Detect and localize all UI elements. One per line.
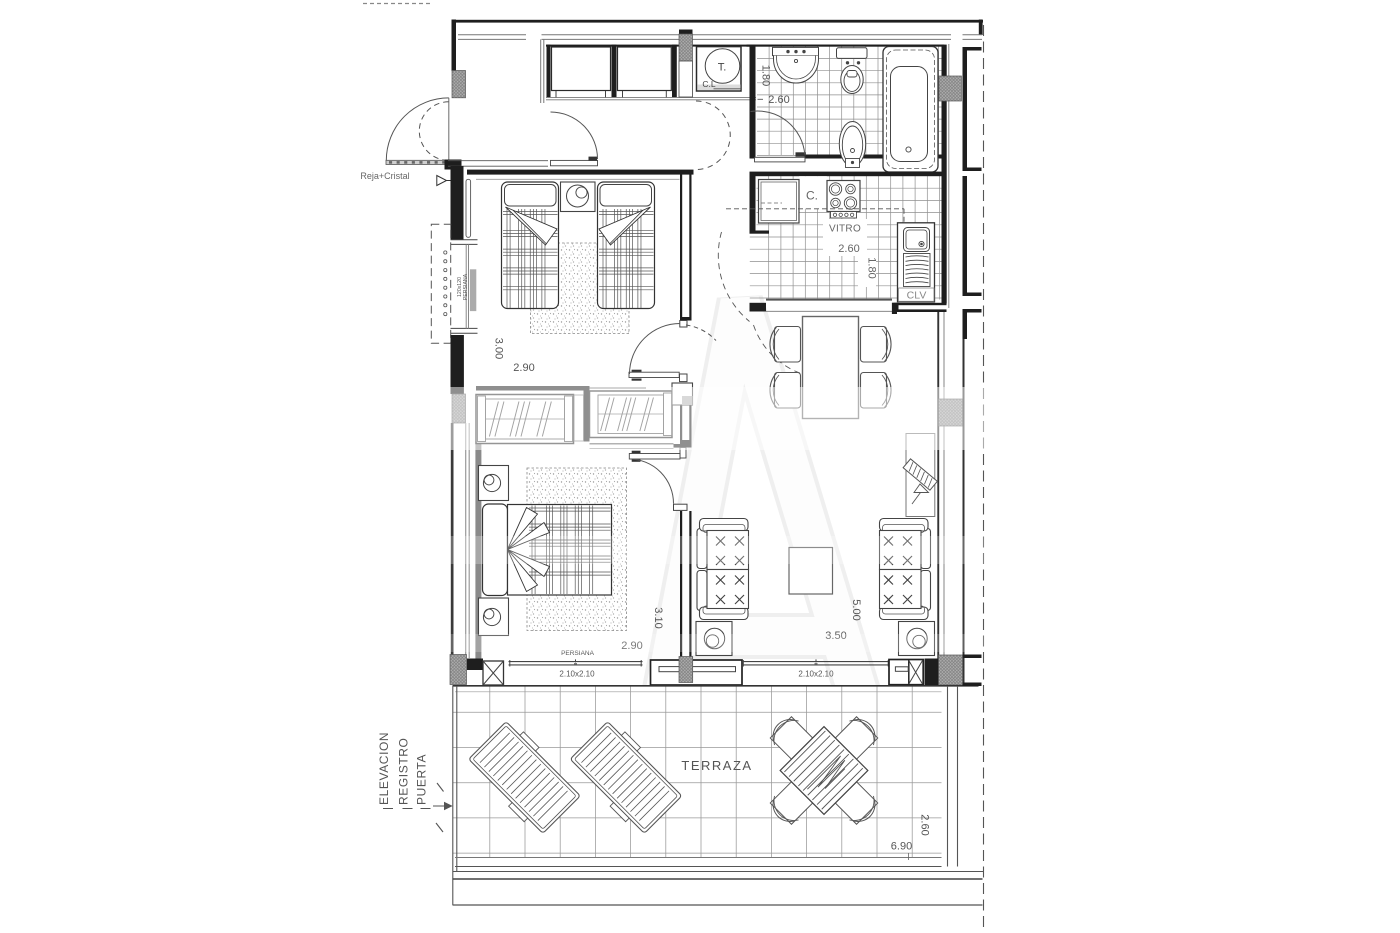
svg-text:CLV: CLV [907,290,927,302]
svg-text:3.10: 3.10 [652,607,664,628]
svg-text:VITRO: VITRO [829,224,861,235]
svg-text:2.90: 2.90 [513,362,534,374]
svg-text:2.10x2.10: 2.10x2.10 [798,670,834,679]
svg-text:2.60: 2.60 [919,814,931,835]
svg-text:1.80: 1.80 [866,257,878,278]
svg-text:2.60: 2.60 [838,243,859,255]
svg-text:TERRAZA: TERRAZA [681,758,752,773]
svg-text:2.10x2.10: 2.10x2.10 [559,670,595,679]
svg-text:3.00: 3.00 [493,338,505,359]
svg-text:6.90: 6.90 [891,841,912,853]
svg-text:ELEVACION: ELEVACION [377,732,391,805]
svg-text:C.L: C.L [702,79,716,89]
svg-text:PERSIANA: PERSIANA [463,273,469,300]
svg-text:Reja+Cristal: Reja+Cristal [360,171,409,181]
svg-text:T.: T. [718,62,727,74]
svg-text:1.80: 1.80 [760,65,772,86]
svg-text:C.: C. [806,189,818,203]
svg-text:PUERTA: PUERTA [415,754,429,805]
svg-text:2.60: 2.60 [768,94,789,106]
svg-text:REGISTRO: REGISTRO [397,738,411,805]
svg-text:5.00: 5.00 [850,599,862,620]
